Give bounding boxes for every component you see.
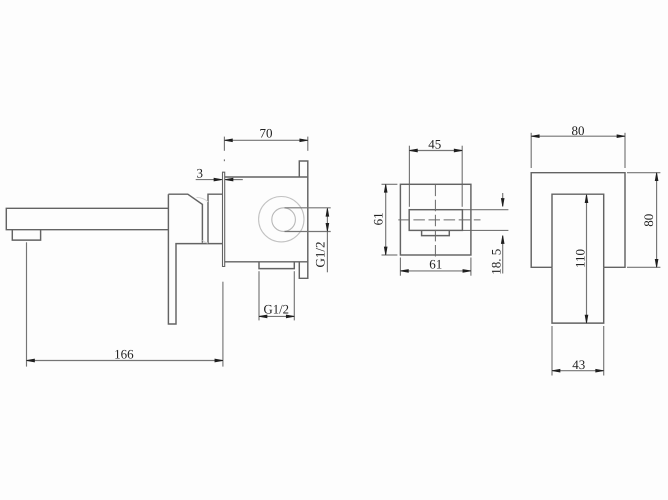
svg-text:61: 61: [370, 212, 385, 225]
svg-text:80: 80: [572, 123, 585, 138]
svg-text:70: 70: [260, 126, 273, 141]
svg-text:G1/2: G1/2: [264, 302, 290, 317]
svg-text:166: 166: [114, 347, 134, 362]
svg-text:43: 43: [572, 357, 585, 372]
svg-text:3: 3: [197, 166, 204, 181]
svg-text:G1/2: G1/2: [312, 242, 327, 268]
svg-text:45: 45: [428, 137, 441, 152]
svg-text:61: 61: [429, 257, 442, 272]
svg-text:18. 5: 18. 5: [489, 249, 504, 275]
svg-text:80: 80: [641, 214, 656, 227]
svg-text:110: 110: [573, 249, 588, 268]
